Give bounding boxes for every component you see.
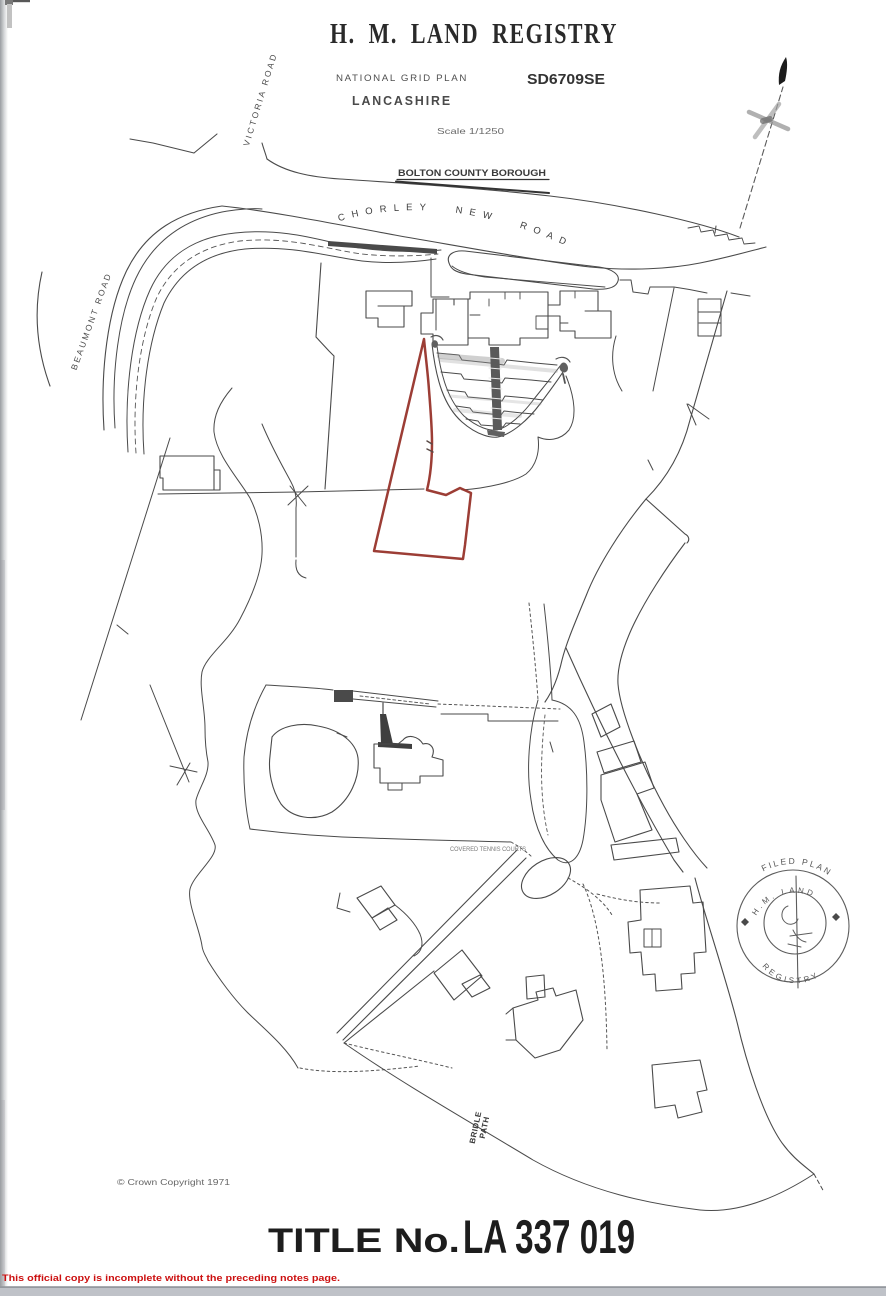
svg-text:LANCASHIRE: LANCASHIRE [352,93,452,108]
svg-text:© Crown Copyright 1971: © Crown Copyright 1971 [117,1177,230,1187]
svg-text:REGISTRY: REGISTRY [761,962,822,986]
svg-text:CHORLEY NEW ROAD: CHORLEY NEW ROAD [337,202,574,250]
svg-text:VICTORIA ROAD: VICTORIA ROAD [241,51,279,147]
svg-text:SD6709SE: SD6709SE [527,72,605,88]
svg-text:This official copy is incomple: This official copy is incomplete without… [2,1273,340,1284]
svg-text:NATIONAL GRID PLAN: NATIONAL GRID PLAN [336,73,468,84]
svg-text:BEAUMONT ROAD: BEAUMONT ROAD [69,271,114,372]
svg-text:TITLE No.: TITLE No. [268,1222,460,1260]
svg-text:BOLTON COUNTY BOROUGH: BOLTON COUNTY BOROUGH [398,168,546,178]
svg-text:COVERED TENNIS COURTS: COVERED TENNIS COURTS [450,846,527,853]
svg-text:H.M. LAND: H.M. LAND [750,886,817,917]
svg-text:H. M. LAND REGISTRY: H. M. LAND REGISTRY [330,18,618,50]
svg-text:LA 337 019: LA 337 019 [463,1210,635,1263]
svg-text:Scale 1/1250: Scale 1/1250 [437,126,504,136]
